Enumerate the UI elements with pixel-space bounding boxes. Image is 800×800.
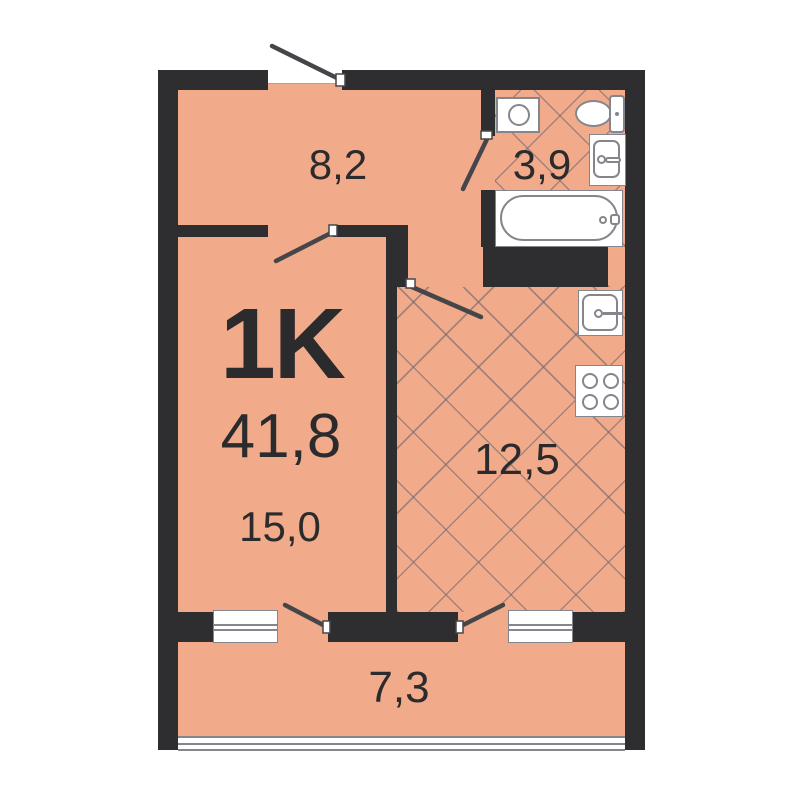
living-balcony-door-hinge [323,621,330,633]
kitchen-area-label: 12,5 [474,438,560,482]
entrance-door-swing [272,46,341,80]
bathroom-door-hinge [481,131,492,139]
balcony-area-label: 7,3 [368,666,429,710]
entrance-door-hinge [336,74,345,86]
living-room-door-swing [276,232,333,261]
kitchen-door-hinge [406,279,415,288]
living-area-label: 15,0 [239,506,321,548]
living-balcony-door-swing [285,605,327,627]
floor-plan: 1K 41,8 15,0 8,2 3,9 12,5 7,3 [0,0,800,800]
bathroom-area-label: 3,9 [513,144,571,186]
kitchen-balcony-door-swing [459,605,503,627]
bathroom-door-swing [463,139,487,189]
apartment-type-label: 1K [220,294,344,394]
kitchen-door-swing [412,287,481,317]
living-room-door-hinge [329,225,337,236]
kitchen-balcony-door-hinge [456,621,463,633]
total-area-label: 41,8 [221,406,342,468]
hallway-area-label: 8,2 [309,144,367,186]
